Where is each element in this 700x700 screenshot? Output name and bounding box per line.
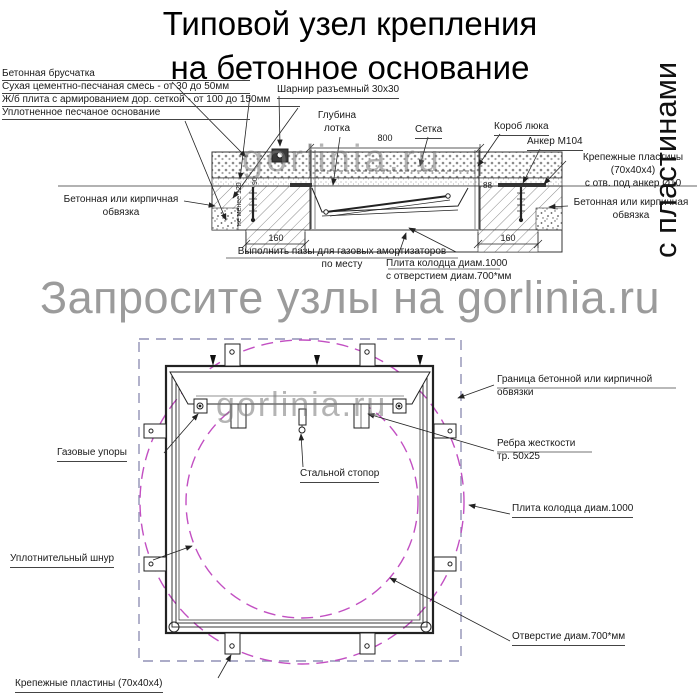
label-edging-left: Бетонная или кирпичная обвязка — [58, 194, 184, 220]
label-cord: Уплотнительный шнур — [10, 553, 114, 568]
label-ribs: Ребра жесткости тр. 50x25 — [497, 438, 607, 464]
label-gas-struts: Газовые упоры — [57, 447, 127, 462]
label-plan-hole: Отверстие диам.700*мм — [512, 631, 625, 646]
label-plates-plan: Крепежные пластины (70x40x4) — [15, 678, 163, 693]
label-hinge: Шарнир разъемный 30x30 — [277, 84, 399, 99]
label-boundary: Граница бетонной или кирпичной обвязки — [497, 374, 692, 400]
dim-left-pier: 160 — [262, 233, 290, 243]
watermark-banner: Запросите узлы на gorlinia.ru — [0, 272, 700, 324]
watermark-plan: gorlinia.ru — [216, 386, 387, 425]
dim-right-pier: 160 — [494, 233, 522, 243]
label-plates-section: Крепежные пластины (70x40x4) с отв. под … — [566, 152, 700, 190]
drawing-sheet: Типовой узел крепления на бетонное основ… — [0, 0, 700, 700]
label-mesh: Сетка — [415, 124, 442, 139]
label-plan-slab: Плита колодца диам.1000 — [512, 503, 633, 518]
label-rc-slab: Ж/б плита с армированием дор. сеткой - о… — [2, 94, 300, 107]
dim-depth-min: не менее 120 — [236, 182, 243, 226]
label-tray-depth: Глубина лотка — [308, 110, 366, 136]
layer-callouts: Бетонная брусчатка Сухая цементно-песчан… — [2, 68, 300, 120]
label-hatch-box: Короб люка — [494, 121, 549, 136]
label-dry-mix: Сухая цементно-песчаная смесь - от 30 до… — [2, 81, 250, 94]
label-stopper: Стальной стопор — [300, 468, 379, 483]
dim-lip: 88 — [483, 181, 492, 190]
label-sand-base: Уплотненное песчаное основание — [2, 107, 250, 120]
label-anchor: Анкер М104 — [527, 136, 583, 151]
label-edging-right: Бетонная или кирпичная обвязка — [570, 197, 692, 223]
label-paving: Бетонная брусчатка — [2, 68, 250, 81]
watermark-section: gorlinia.ru — [242, 138, 442, 181]
